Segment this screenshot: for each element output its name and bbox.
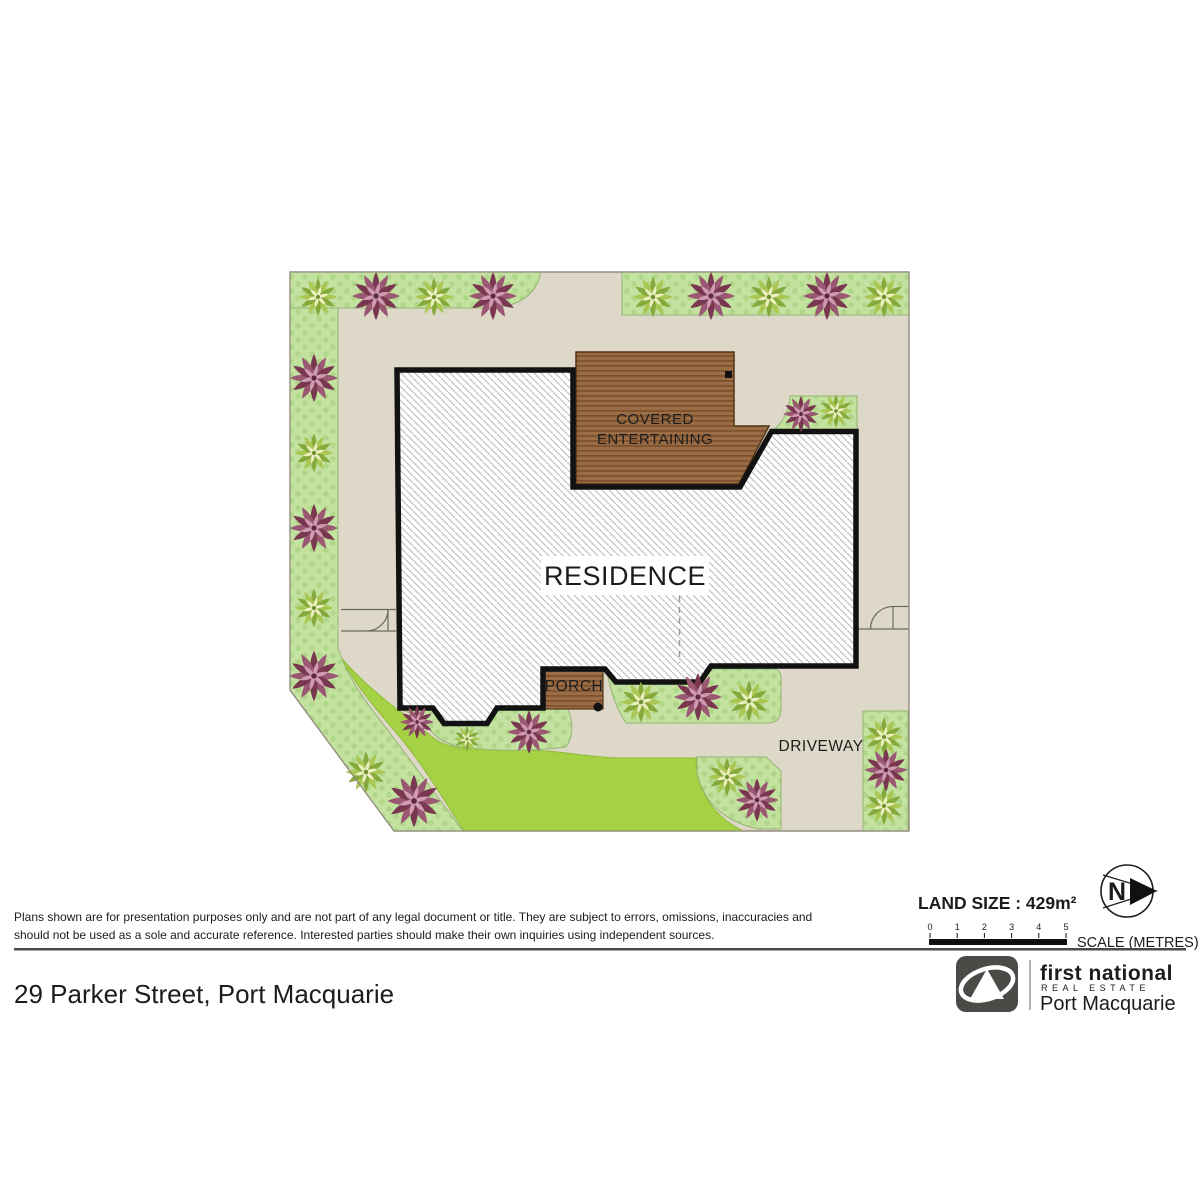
scale-tick-label: 4 bbox=[1036, 922, 1041, 932]
deck-post-marker bbox=[725, 371, 732, 378]
covered-entertaining-label-1: COVERED bbox=[616, 411, 694, 428]
scale-tick-label: 2 bbox=[982, 922, 987, 932]
scale-tick-label: 5 bbox=[1063, 922, 1068, 932]
brand-office: Port Macquarie bbox=[1040, 993, 1176, 1015]
site-plan-page: RESIDENCE COVERED ENTERTAINING PORCH DRI… bbox=[0, 0, 1200, 1200]
scale-tick-label: 3 bbox=[1009, 922, 1014, 932]
covered-entertaining-label-2: ENTERTAINING bbox=[597, 431, 713, 448]
agency-logo: first national REAL ESTATE Port Macquari… bbox=[956, 956, 1176, 1015]
footer-divider bbox=[14, 948, 1186, 951]
scale-tick-label: 1 bbox=[955, 922, 960, 932]
land-size-label: LAND SIZE : 429m² bbox=[918, 893, 1077, 913]
site-plan-drawing: RESIDENCE COVERED ENTERTAINING PORCH DRI… bbox=[0, 0, 1200, 1200]
disclaimer-line-1: Plans shown are for presentation purpose… bbox=[14, 910, 812, 924]
porch-label: PORCH bbox=[545, 678, 603, 695]
porch-post-marker bbox=[594, 703, 603, 712]
property-address: 29 Parker Street, Port Macquarie bbox=[14, 979, 394, 1009]
brand-name: first national bbox=[1040, 962, 1173, 985]
north-compass-icon: N bbox=[1101, 865, 1157, 917]
scale-tick-label: 0 bbox=[927, 922, 932, 932]
residence-label: RESIDENCE bbox=[544, 561, 706, 591]
disclaimer-line-2: should not be used as a sole and accurat… bbox=[14, 928, 714, 942]
scale-bar-ticks: 012345 bbox=[927, 922, 1068, 938]
brand-tagline: REAL ESTATE bbox=[1041, 983, 1150, 993]
driveway-label: DRIVEWAY bbox=[779, 738, 864, 755]
scale-bar bbox=[929, 939, 1067, 945]
compass-north-letter: N bbox=[1108, 878, 1126, 906]
